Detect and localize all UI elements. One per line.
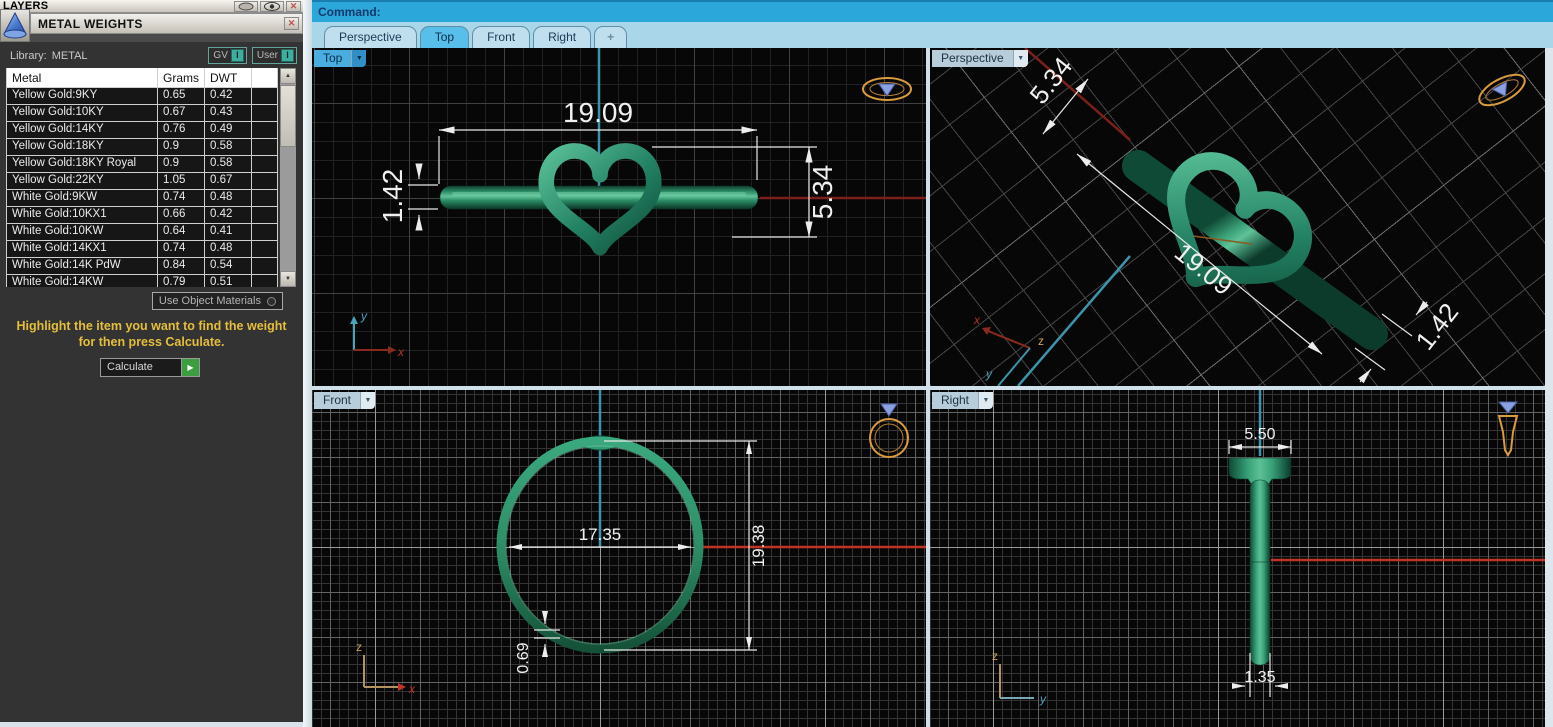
viewport-front[interactable]: 17.35 19.38 0.69 z x xyxy=(312,390,926,727)
gv-toggle[interactable]: GV I xyxy=(208,47,246,64)
panel-close-button[interactable]: ✕ xyxy=(284,17,299,30)
viewport-label-front[interactable]: Front ▼ xyxy=(314,392,375,409)
axis-label-x: x xyxy=(973,313,981,327)
library-label: Library: xyxy=(10,50,47,62)
user-toggle[interactable]: User I xyxy=(252,47,297,64)
axis-indicator: y x xyxy=(350,309,405,359)
layers-title: LAYERS xyxy=(0,0,234,12)
viewport-label-right[interactable]: Right ▼ xyxy=(932,392,993,409)
user-label: User xyxy=(257,50,278,61)
metal-weights-table: Metal Grams DWT Yellow Gold:9KY0.650.42 … xyxy=(6,68,278,287)
viewport-label-perspective[interactable]: Perspective ▼ xyxy=(932,50,1028,67)
ring-orientation-icon xyxy=(863,78,911,100)
dim-text-width: 19.09 xyxy=(563,97,633,128)
top-view-drawing: 19.09 1.42 5.34 y x xyxy=(312,48,926,386)
col-grams: Grams xyxy=(158,68,205,88)
user-state: I xyxy=(281,49,294,62)
table-row[interactable]: White Gold:14K PdW0.840.54 xyxy=(7,258,278,275)
ring-model-right xyxy=(1229,458,1291,665)
dim-text-inner: 17.35 xyxy=(579,525,622,544)
calculate-group: Calculate ▶ xyxy=(100,358,200,377)
panel-title: METAL WEIGHTS xyxy=(31,17,284,31)
tab-perspective[interactable]: Perspective xyxy=(324,26,417,48)
ring-model-top xyxy=(440,151,758,248)
chevron-down-icon[interactable]: ▼ xyxy=(1013,50,1028,67)
axis-label-y: y xyxy=(985,367,993,381)
app-window: LAYERS ✕ METAL WEIGHTS ✕ xyxy=(0,0,1553,727)
collapse-icon[interactable] xyxy=(234,1,258,12)
viewport-separator-horizontal[interactable] xyxy=(312,386,1545,390)
right-view-drawing: 5.50 1.35 z y xyxy=(930,390,1545,727)
dim-text-band: 1.42 xyxy=(1410,297,1465,355)
ring-orientation-icon xyxy=(1499,402,1517,455)
table-row[interactable]: Yellow Gold:14KY0.760.49 xyxy=(7,122,278,139)
viewport-tab-strip: Perspective Top Front Right + xyxy=(312,22,1553,48)
chevron-down-icon[interactable]: ▼ xyxy=(360,392,375,409)
play-icon[interactable]: ▶ xyxy=(181,359,199,376)
panel-splitter[interactable] xyxy=(303,0,312,727)
tab-top[interactable]: Top xyxy=(420,26,469,48)
axis-label-z: z xyxy=(992,649,998,663)
axis-label-y: y xyxy=(360,309,368,323)
cplane-y-axis-line xyxy=(1018,256,1130,386)
viewport-label-top[interactable]: Top ▼ xyxy=(314,50,366,67)
gv-label: GV xyxy=(213,50,227,61)
tab-add-viewport[interactable]: + xyxy=(594,26,627,48)
scroll-up-icon[interactable]: ▲ xyxy=(280,68,296,84)
viewport-right[interactable]: 5.50 1.35 z y Right ▼ xyxy=(930,390,1545,727)
axis-label-y: y xyxy=(1039,692,1047,706)
library-row: Library: METAL GV I User I xyxy=(10,47,297,64)
command-label: Command: xyxy=(312,5,381,19)
table-row[interactable]: White Gold:14KX10.740.48 xyxy=(7,241,278,258)
table-row[interactable]: Yellow Gold:10KY0.670.43 xyxy=(7,105,278,122)
col-metal: Metal xyxy=(7,68,158,88)
front-view-drawing: 17.35 19.38 0.69 z x xyxy=(312,390,926,727)
table-row[interactable]: White Gold:10KW0.640.41 xyxy=(7,224,278,241)
ring-orientation-icon xyxy=(870,404,908,457)
axis-label-x: x xyxy=(408,682,416,696)
table-row[interactable]: White Gold:9KW0.740.48 xyxy=(7,190,278,207)
instruction-text: Highlight the item you want to find the … xyxy=(0,318,303,350)
gv-state: I xyxy=(231,49,244,62)
table-row[interactable]: White Gold:10KX10.660.42 xyxy=(7,207,278,224)
dim-text-top-width: 5.50 xyxy=(1244,426,1275,443)
dim-text-heart: 5.34 xyxy=(807,165,838,220)
command-bar[interactable]: Command: xyxy=(312,0,1553,22)
tab-front[interactable]: Front xyxy=(472,26,530,48)
ring-orientation-icon xyxy=(1475,69,1529,112)
viewport-top[interactable]: 19.09 1.42 5.34 y x xyxy=(312,48,926,386)
viewport-perspective[interactable]: 5.34 19.09 1.42 x z y xyxy=(930,48,1545,386)
ring-model-perspective xyxy=(1138,147,1372,334)
axis-label-x: x xyxy=(397,345,405,359)
perspective-view-drawing: 5.34 19.09 1.42 x z y xyxy=(930,48,1545,386)
axis-indicator: z x xyxy=(356,640,416,696)
table-header-row: Metal Grams DWT xyxy=(7,68,278,88)
dimension-band xyxy=(408,164,438,230)
table-row[interactable]: Yellow Gold:18KY0.90.58 xyxy=(7,139,278,156)
metal-weights-header: METAL WEIGHTS ✕ xyxy=(0,13,303,42)
col-dwt: DWT xyxy=(205,68,252,88)
use-object-materials-button[interactable]: Use Object Materials xyxy=(152,292,283,310)
radio-indicator-icon xyxy=(267,297,276,306)
scrollbar-thumb[interactable] xyxy=(280,85,296,147)
library-value: METAL xyxy=(52,50,204,62)
panel-titlebar[interactable]: METAL WEIGHTS ✕ xyxy=(30,13,303,34)
table-row[interactable]: Yellow Gold:18KY Royal0.90.58 xyxy=(7,156,278,173)
table-row[interactable]: Yellow Gold:22KY1.050.67 xyxy=(7,173,278,190)
scale-tool-icon[interactable] xyxy=(0,9,30,42)
dim-text-bottom-width: 1.35 xyxy=(1244,669,1275,686)
layers-close-button[interactable]: ✕ xyxy=(286,1,301,12)
chevron-down-icon[interactable]: ▼ xyxy=(978,392,993,409)
axis-indicator: z y xyxy=(992,649,1047,706)
panel-bottom-edge xyxy=(0,722,310,727)
right-edge-strip xyxy=(1545,48,1553,727)
dimension-outer xyxy=(604,441,757,650)
axis-indicator: x z y xyxy=(973,313,1044,386)
dim-text-outer: 19.38 xyxy=(749,525,768,568)
table-scrollbar[interactable]: ▲ ▼ xyxy=(280,68,296,287)
calculate-button[interactable]: Calculate xyxy=(101,359,181,376)
axis-label-z: z xyxy=(1038,334,1044,348)
table-row[interactable]: White Gold:14KW0.790.51 xyxy=(7,275,278,287)
dim-text-thickness: 0.69 xyxy=(515,642,532,673)
table-row[interactable]: Yellow Gold:9KY0.650.42 xyxy=(7,88,278,105)
dim-text-band: 1.42 xyxy=(377,169,408,224)
scroll-down-icon[interactable]: ▼ xyxy=(280,271,296,287)
eye-icon[interactable] xyxy=(260,1,284,12)
metal-weights-panel: LAYERS ✕ METAL WEIGHTS ✕ xyxy=(0,0,303,722)
chevron-down-icon[interactable]: ▼ xyxy=(351,50,366,67)
tab-right[interactable]: Right xyxy=(533,26,591,48)
layers-titlebar[interactable]: LAYERS ✕ xyxy=(0,0,303,13)
axis-label-z: z xyxy=(356,640,362,654)
